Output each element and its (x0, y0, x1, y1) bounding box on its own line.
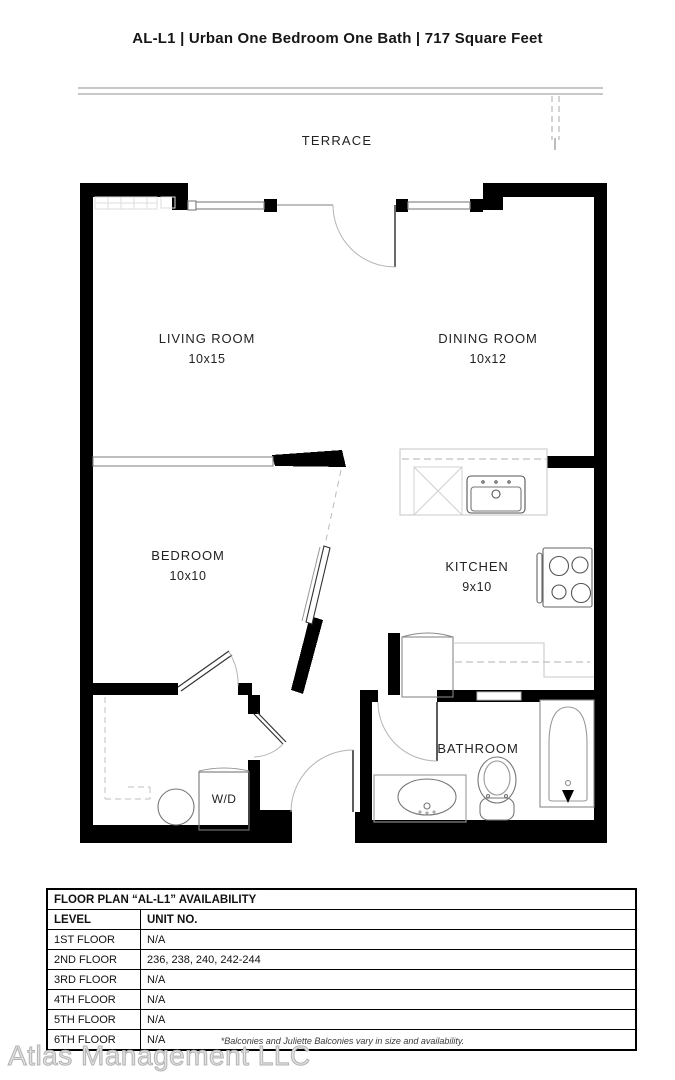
bathtub (540, 700, 594, 807)
dining-room-label: DINING ROOM 10x12 (438, 328, 537, 370)
bedroom-sliding-door (302, 470, 341, 624)
table-row: 5TH FLOOR N/A (47, 1010, 636, 1030)
kitchen-counter-lower (453, 643, 594, 677)
water-heater (158, 789, 194, 825)
units-cell: N/A (141, 990, 637, 1010)
table-title-row: FLOOR PLAN “AL-L1” AVAILABILITY (47, 889, 636, 910)
level-cell: 2ND FLOOR (47, 950, 141, 970)
room-name: DINING ROOM (438, 328, 537, 349)
doors (178, 205, 437, 812)
column-header-unit-no: UNIT NO. (141, 910, 637, 930)
room-name: LIVING ROOM (159, 328, 256, 349)
room-dims: 10x10 (151, 566, 224, 587)
availability-table: FLOOR PLAN “AL-L1” AVAILABILITY LEVEL UN… (46, 888, 637, 1051)
level-cell: 5TH FLOOR (47, 1010, 141, 1030)
column-header-level: LEVEL (47, 910, 141, 930)
level-cell: 4TH FLOOR (47, 990, 141, 1010)
bath-niche (477, 692, 521, 700)
level-cell: 3RD FLOOR (47, 970, 141, 990)
kitchen-label: KITCHEN 9x10 (445, 556, 508, 598)
closet-rod-dashed (105, 697, 150, 799)
dishwasher (414, 467, 462, 515)
terrace-label: TERRACE (302, 133, 373, 148)
walls (80, 183, 607, 843)
living-room-label: LIVING ROOM 10x15 (159, 328, 256, 370)
terrace-door (333, 205, 395, 267)
windows (188, 201, 470, 210)
stove (537, 548, 592, 607)
level-cell: 1ST FLOOR (47, 930, 141, 950)
units-cell: N/A (141, 1010, 637, 1030)
balcony-footnote: *Balconies and Juliette Balconies vary i… (0, 1036, 675, 1046)
room-dims: 10x12 (438, 349, 537, 370)
bathroom-door (378, 702, 437, 761)
units-cell: N/A (141, 930, 637, 950)
bedroom-door (178, 651, 238, 691)
room-name: BEDROOM (151, 545, 224, 566)
units-cell: N/A (141, 970, 637, 990)
bathroom-label: BATHROOM (437, 738, 518, 759)
baseboard-heater (95, 197, 175, 209)
table-header-row: LEVEL UNIT NO. (47, 910, 636, 930)
units-cell: 236, 238, 240, 242-244 (141, 950, 637, 970)
room-name: BATHROOM (437, 738, 518, 759)
window-dining (408, 202, 470, 209)
room-dims: 10x15 (159, 349, 256, 370)
kitchen-sink (467, 476, 525, 513)
toilet (478, 757, 516, 820)
table-row: 3RD FLOOR N/A (47, 970, 636, 990)
refrigerator (402, 633, 453, 697)
table-row: 4TH FLOOR N/A (47, 990, 636, 1010)
bedroom-partition-wall (93, 457, 273, 466)
window-living (196, 202, 264, 209)
entry-door (291, 750, 353, 812)
room-name: KITCHEN (445, 556, 508, 577)
bedroom-label: BEDROOM 10x10 (151, 545, 224, 587)
table-title: FLOOR PLAN “AL-L1” AVAILABILITY (47, 889, 636, 910)
washer-dryer-label: W/D (212, 792, 237, 806)
table-row: 2ND FLOOR 236, 238, 240, 242-244 (47, 950, 636, 970)
room-dims: 9x10 (445, 577, 508, 598)
table-row: 1ST FLOOR N/A (47, 930, 636, 950)
vanity-sink (374, 775, 466, 822)
closet-door (254, 712, 286, 757)
